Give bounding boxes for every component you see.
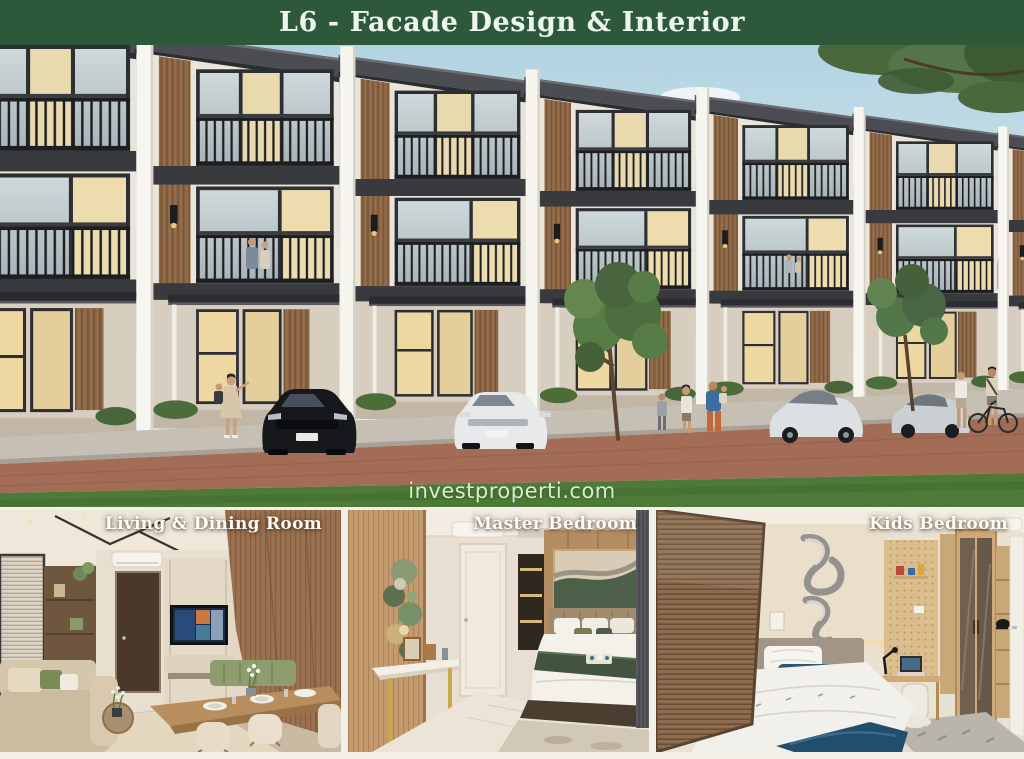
photo-label-living-dining: Living & Dining Room xyxy=(105,514,322,534)
exterior-render xyxy=(0,45,1024,507)
page-title: L6 - Facade Design & Interior xyxy=(279,7,745,38)
photo-master-bedroom: Master Bedroom xyxy=(348,510,649,752)
breakfast-tray xyxy=(586,654,612,664)
kids-bedroom-render xyxy=(656,510,1024,752)
master-bedroom-render xyxy=(348,510,649,752)
door xyxy=(116,572,160,692)
header-bar: L6 - Facade Design & Interior xyxy=(0,0,1024,45)
wardrobe xyxy=(956,530,996,728)
watermark: investproperti.com xyxy=(0,479,1024,503)
artwork xyxy=(554,550,638,608)
photo-label-master-bedroom: Master Bedroom xyxy=(473,514,637,534)
side-shelf xyxy=(996,546,1010,718)
photo-label-kids-bedroom: Kids Bedroom xyxy=(869,514,1008,534)
photo-living-dining: Living & Dining Room xyxy=(0,510,341,752)
pegboard-desk-wall xyxy=(884,540,938,676)
curtain xyxy=(636,510,649,728)
brochure-page: L6 - Facade Design & Interior xyxy=(0,0,1024,759)
door xyxy=(460,544,506,696)
tv xyxy=(170,605,228,645)
exterior-photo: investproperti.com xyxy=(0,45,1024,507)
dining-bench xyxy=(210,660,296,686)
window-blinds xyxy=(656,510,764,752)
headboard-wall xyxy=(760,524,886,654)
living-dining-render xyxy=(0,510,341,752)
door xyxy=(1010,536,1024,740)
wood-column xyxy=(940,534,956,694)
interior-photo-strip: Living & Dining Room xyxy=(0,507,1024,759)
ac-unit xyxy=(112,552,162,567)
photo-kids-bedroom: Kids Bedroom xyxy=(656,510,1024,752)
